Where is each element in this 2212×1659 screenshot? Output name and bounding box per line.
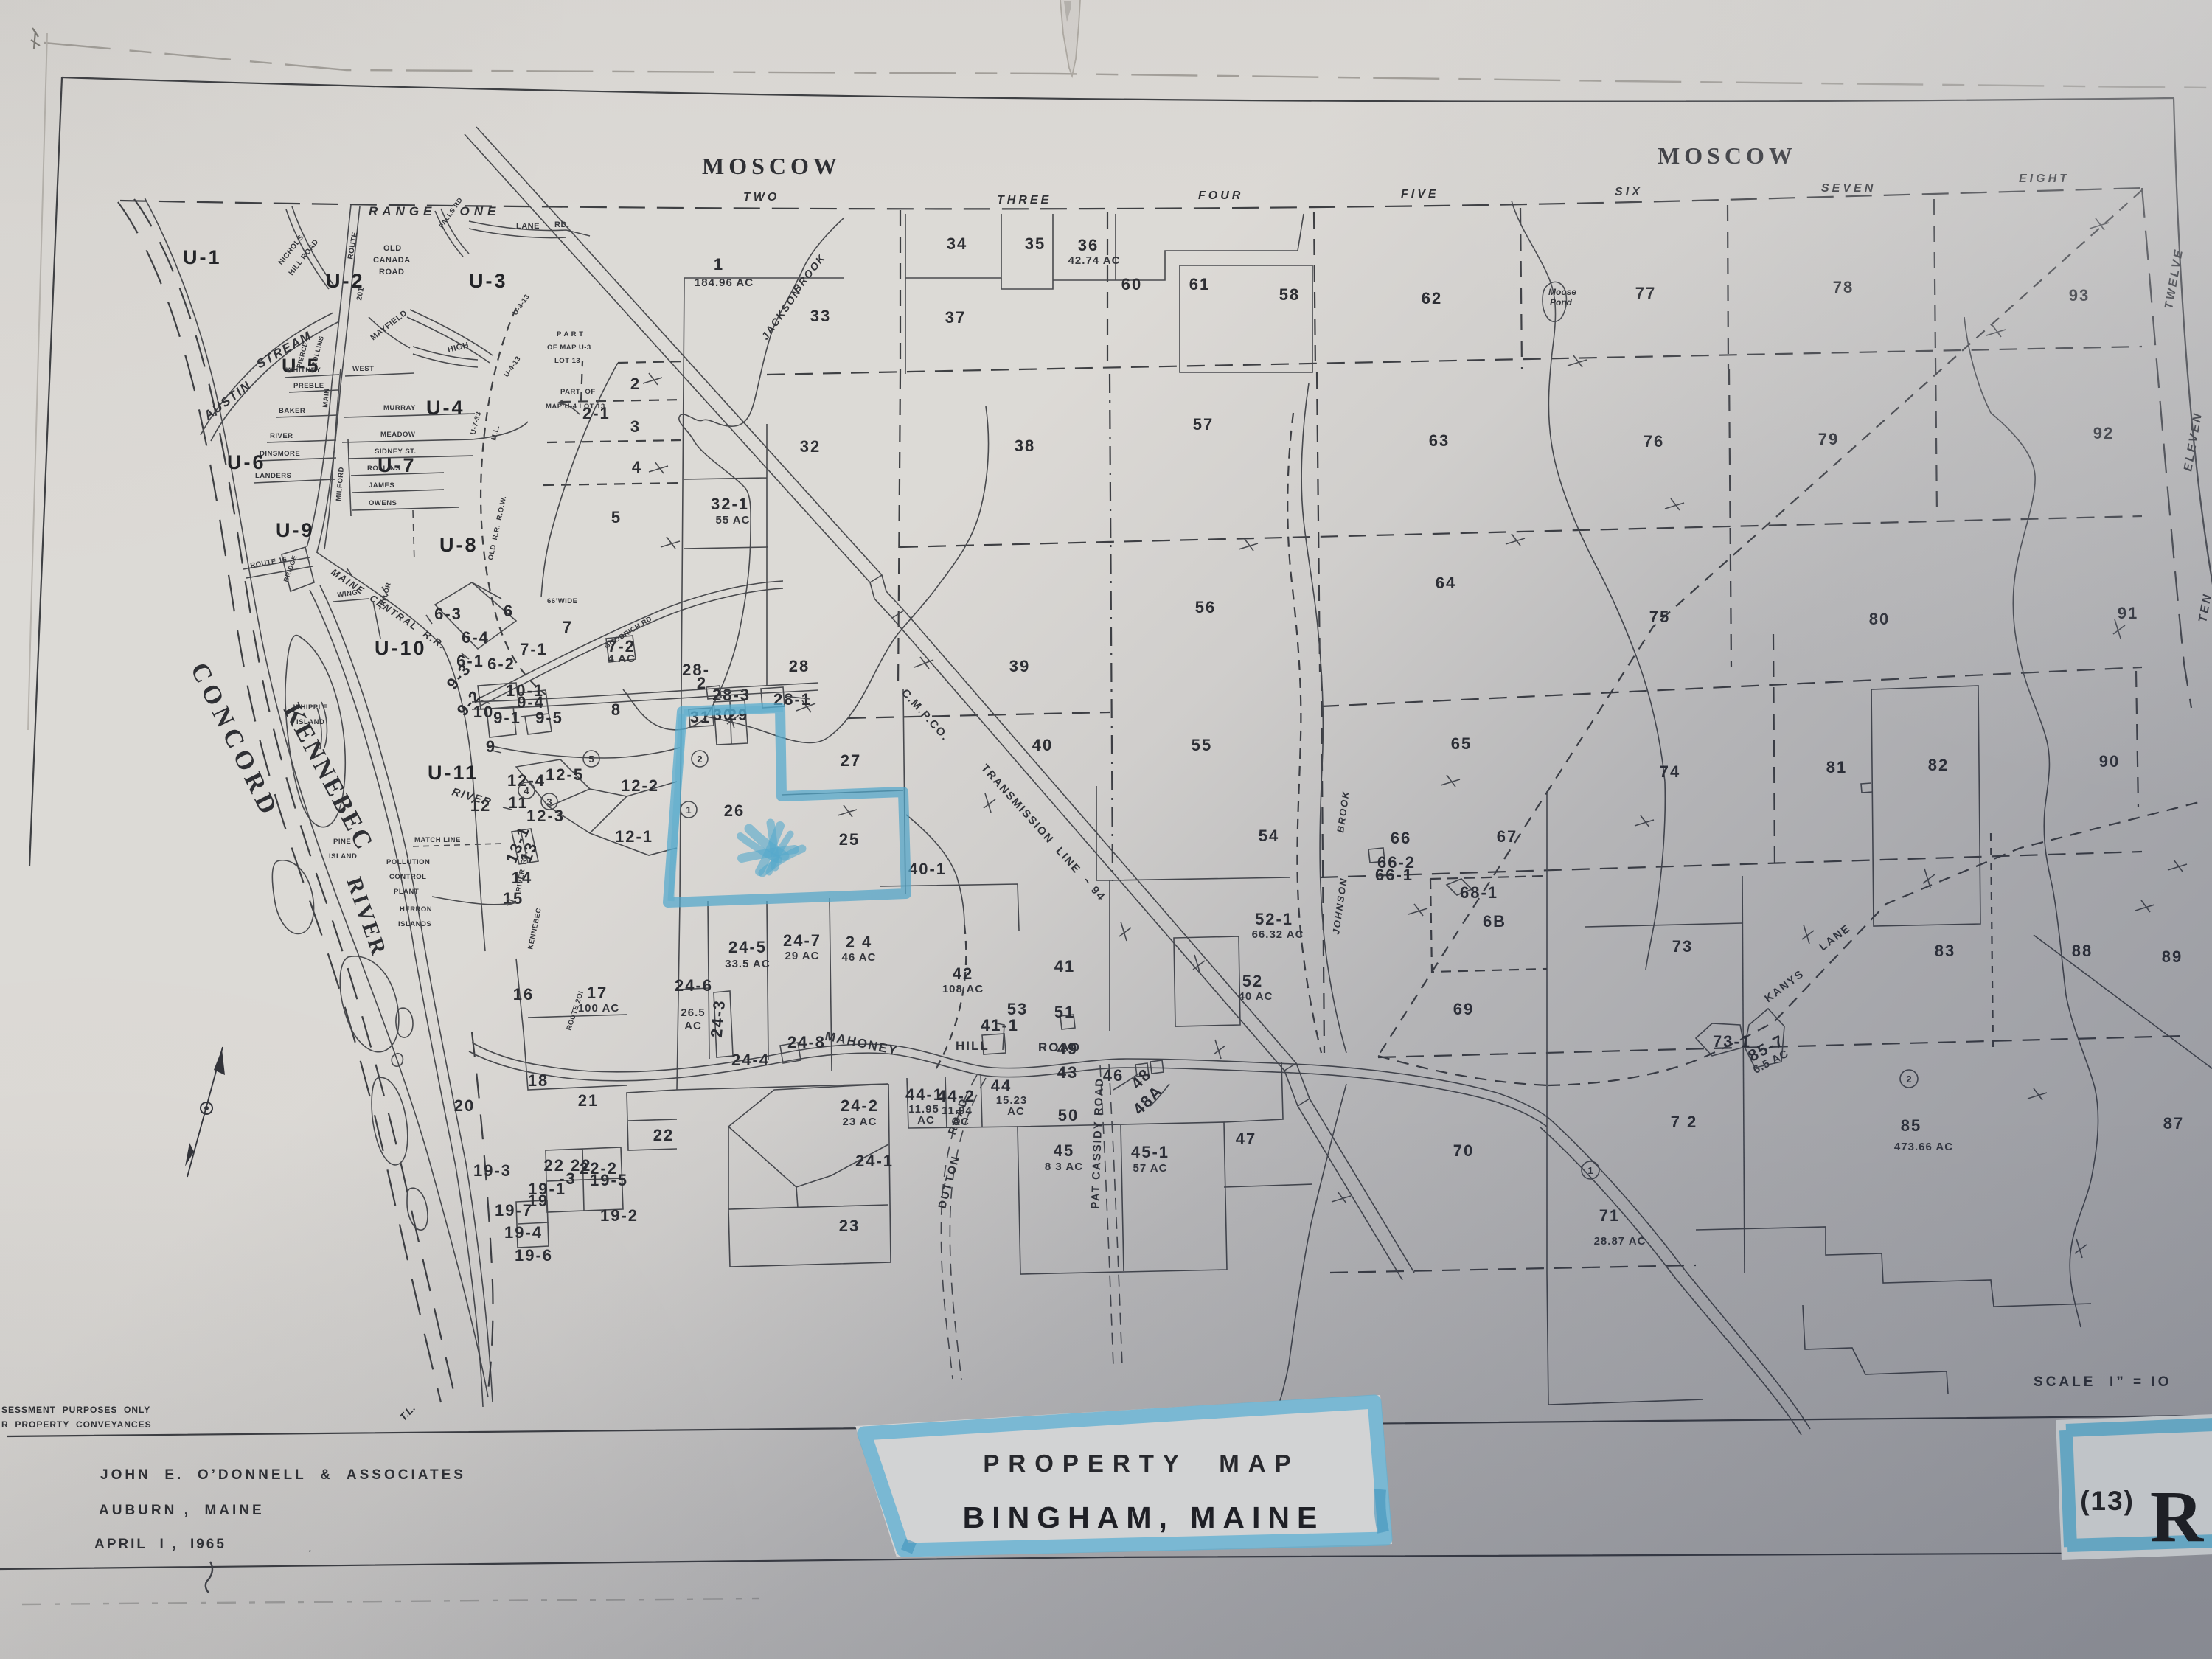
svg-text:R: R <box>2150 1475 2205 1557</box>
svg-text:(13): (13) <box>2080 1486 2135 1516</box>
svg-text:PROPERTY MAP: PROPERTY MAP <box>983 1450 1299 1477</box>
svg-text:BINGHAM, MAINE: BINGHAM, MAINE <box>963 1500 1325 1534</box>
